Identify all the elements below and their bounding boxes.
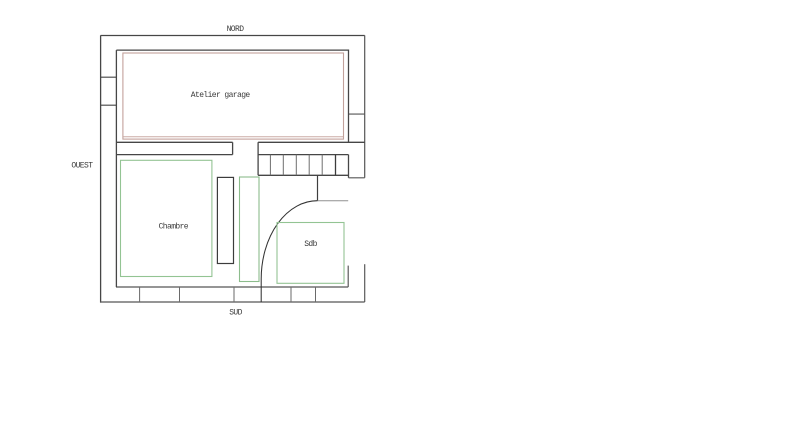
- svg-text:OUEST: OUEST: [71, 162, 93, 171]
- svg-text:Chambre: Chambre: [159, 222, 189, 231]
- svg-text:NORD: NORD: [227, 25, 245, 34]
- svg-text:SUD: SUD: [229, 309, 242, 318]
- svg-text:Sdb: Sdb: [304, 240, 317, 249]
- svg-text:Atelier garage: Atelier garage: [191, 91, 251, 100]
